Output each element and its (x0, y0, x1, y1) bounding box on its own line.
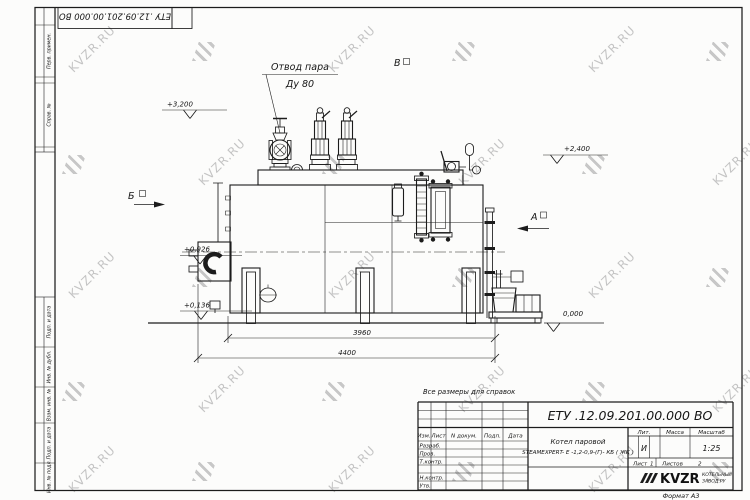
feed-pump (489, 270, 542, 323)
boiler-shell (226, 185, 484, 313)
water-level-gauges (393, 172, 453, 243)
format-note: Формат А3 (662, 492, 699, 500)
col-header: Дата (507, 434, 523, 440)
view-letter: В (394, 58, 401, 69)
company-tagline: ЗАВОД.РУ (702, 479, 727, 485)
row-label: Пров. (420, 452, 436, 458)
reference-note: Все размеры для справок (423, 388, 516, 396)
pressure-instrument (459, 144, 481, 175)
view-letter: Б (128, 191, 135, 202)
margin-label: Подп. и дата (47, 427, 53, 460)
safety-valve (337, 108, 358, 170)
margin-label: Подп. и дата (47, 306, 53, 339)
dimension-value: 3960 (353, 329, 371, 337)
col-header: Лист (430, 434, 446, 440)
margin-label: Перв. примен. (47, 33, 53, 69)
top-left-cock (213, 183, 223, 242)
dimension-value: 4400 (338, 349, 356, 357)
lit-header: Лит. (637, 430, 651, 436)
sheets-value: 2 (698, 462, 702, 468)
elevation-value: +0,926 (184, 246, 210, 254)
corner-stamp-doc-number: ЕТУ .12.09.201.00.000 ВО (59, 11, 171, 21)
drawing-page: { "watermark": { "text": "KVZR.RU", "col… (0, 0, 750, 500)
product-designation: STEAMEXPERT- Е -1,2-0,9-(Г)- КБ ( ЖК ) (522, 450, 634, 456)
elevation-mark-3200: +3,200 (162, 101, 227, 119)
small-dome (292, 165, 303, 171)
elevation-value: 0,000 (563, 310, 584, 318)
dimension-4400: 4400 (194, 349, 499, 362)
support-leg (242, 268, 260, 324)
elevation-mark-2400: +2,400 (543, 145, 608, 164)
manhole (259, 285, 277, 303)
row-label: Разраб. (420, 444, 441, 450)
boiler-side-view: 3960 4400 +3,200 +2,400 +0,926 +0,136 (128, 58, 608, 363)
company-name: KVZR (660, 472, 700, 487)
title-block: Все размеры для справок ЕТУ .12.09.201.0… (417, 388, 733, 500)
row-label: Н.контр. (420, 476, 444, 482)
elevation-mark-zero: 0,000 (544, 310, 604, 332)
steam-outlet-callout: Отвод пара Ду 80 (262, 62, 338, 133)
margin-label: Инв. № дубл. (47, 351, 53, 384)
support-leg (462, 268, 480, 324)
sheets-label: Листов (661, 462, 683, 468)
doc-number: ЕТУ .12.09.201.00.000 ВО (548, 408, 713, 423)
view-label-a: А (517, 212, 549, 232)
callout-text: Отвод пара (271, 62, 329, 73)
mass-header: Масса (666, 430, 684, 436)
sheet-value: 1 (650, 462, 654, 468)
margin-label: Инв. № подл. (47, 460, 53, 493)
sheet-label: Лист (632, 462, 648, 468)
col-header: Изм. (417, 434, 430, 440)
lit-value: И (641, 444, 647, 453)
elevation-value: +2,400 (564, 145, 590, 153)
elevation-value: +0,136 (184, 302, 210, 310)
corner-stamp: ЕТУ .12.09.201.00.000 ВО (58, 8, 192, 29)
col-header: Подп. (484, 434, 501, 440)
view-label-b: Б (128, 191, 165, 208)
support-leg (356, 268, 374, 324)
elevation-mark-0136: +0,136 (180, 302, 252, 320)
view-label-v: В (394, 58, 410, 69)
scale-header: Масштаб (698, 430, 725, 436)
view-letter: А (530, 212, 538, 223)
scale-value: 1:25 (703, 444, 721, 453)
safety-valve (310, 108, 331, 170)
steam-outlet-valve (269, 119, 291, 171)
company-tagline: КОТЕЛЬНЫЙ (702, 471, 732, 478)
col-header: N докум. (451, 434, 477, 440)
margin-label: Справ. № (47, 103, 53, 126)
lever-safety-valve (441, 151, 459, 172)
elevation-value: +3,200 (167, 101, 193, 109)
row-label: Т.контр. (420, 460, 443, 466)
margin-stamp-column: Перв. примен. Справ. № Подп. и дата Инв.… (35, 8, 55, 494)
margin-label: Взам. инв. № (47, 389, 53, 422)
company-logo: KVZR КОТЕЛЬНЫЙ ЗАВОД.РУ (640, 471, 732, 487)
callout-text: Ду 80 (285, 79, 314, 90)
boiler-general-view-drawing: Перв. примен. Справ. № Подп. и дата Инв.… (0, 0, 750, 500)
product-name: Котел паровой (551, 438, 606, 446)
row-label: Утв. (420, 484, 431, 490)
